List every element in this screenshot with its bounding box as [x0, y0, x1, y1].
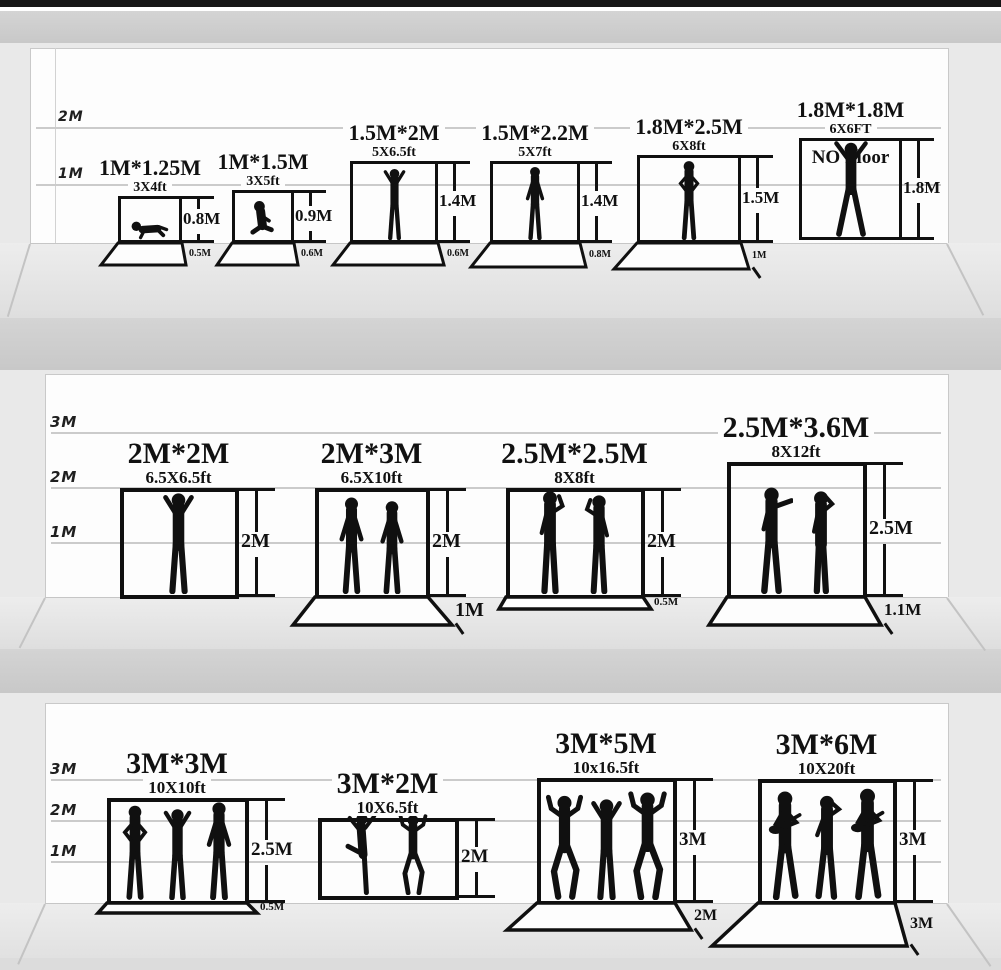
dimension-line-lower: [475, 872, 478, 895]
dimension-line-upper: [197, 199, 200, 209]
backdrop-caption: 2.5M*2.5M8X8ft: [451, 439, 698, 487]
backdrop-title: 2M*3M: [316, 439, 428, 469]
axis-label: 2M: [58, 109, 84, 125]
shelf-row-small-backdrops: 2M1M1M*1.25M3X4ft0.8M0.5M1M*1.5M3X5ft0.9…: [0, 43, 1001, 318]
height-dimension: 1.8M: [900, 138, 964, 240]
backdrop-caption: 3M*2M10X6.5ft: [263, 769, 512, 817]
silhouette-guitar-icon: [763, 790, 807, 900]
backdrop-subtitle-feet: 8X12ft: [766, 443, 825, 460]
subtitle-row: 6X8ft: [582, 138, 796, 154]
floor-depth-label: 1.1M: [884, 600, 921, 620]
title-row: 3M*5M: [482, 729, 730, 759]
backdrop-title: 3M*3M: [121, 749, 233, 779]
height-dimension: 2.5M: [863, 462, 927, 597]
backdrop-title: 1.8M*1.8M: [792, 99, 910, 121]
dimension-line-upper: [693, 781, 696, 830]
silhouette-victory-icon: [158, 492, 199, 594]
shelf-front-edge: [0, 958, 1001, 970]
title-row: 1.8M*1.8M: [744, 99, 957, 121]
height-dimension: 2M: [641, 488, 705, 597]
silhouette-phone-icon: [800, 490, 842, 594]
silhouette-victory-icon: [159, 808, 196, 900]
height-dimension: 3M: [893, 779, 957, 903]
floor-mat: [289, 595, 456, 629]
height-dimension-label: 1.8M: [903, 178, 940, 198]
silhouette-talkR-icon: [529, 490, 571, 594]
shelf-divider-band: [0, 11, 1001, 43]
shelf-row-medium-backdrops: 3M2M1M2M*2M6.5X6.5ft2M2M*3M6.5X10ft2M1M2…: [0, 370, 1001, 649]
floor-mat: [495, 595, 655, 613]
dimension-line-lower: [265, 865, 268, 901]
height-dimension-label: 1.4M: [581, 191, 618, 211]
subtitle-row: 10X6.5ft: [263, 799, 512, 817]
backdrop-subtitle-feet: 6.5X6.5ft: [140, 469, 216, 486]
title-row: 3M*6M: [703, 730, 950, 760]
floor-mat: [97, 241, 190, 269]
dimension-line-lower: [197, 234, 200, 241]
dimension-line-upper: [661, 491, 664, 532]
silhouette-stand-icon: [332, 496, 371, 594]
subtitle-row: 6.5X10ft: [260, 469, 483, 487]
dimension-line-upper: [446, 491, 449, 532]
dimension-line-upper: [255, 491, 258, 532]
silhouette-hips-icon: [673, 160, 705, 240]
silhouette-kick-icon: [343, 811, 382, 895]
dimension-line-lower: [309, 231, 312, 241]
dimension-bottom-tick: [455, 895, 495, 898]
backdrop-title: 3M*6M: [771, 730, 883, 760]
backdrop-frame: [318, 818, 459, 900]
backdrop-subtitle-feet: 6X6FT: [825, 123, 877, 137]
dimension-bottom-tick: [436, 240, 470, 243]
silhouette-victory-icon: [586, 798, 627, 900]
floor-depth-label: 2M: [694, 907, 717, 925]
height-dimension: 1.4M: [436, 161, 500, 243]
floor-mat: [708, 901, 911, 950]
backdrop-size-chart: 2M1M1M*1.25M3X4ft0.8M0.5M1M*1.5M3X5ft0.9…: [0, 0, 1001, 970]
height-dimension: 1.5M: [739, 155, 803, 243]
silhouette-point-icon: [750, 486, 793, 594]
dimension-bottom-tick: [578, 240, 612, 243]
dimension-line-lower: [883, 544, 886, 595]
floor-mat: [503, 901, 695, 934]
dimension-line-upper: [913, 782, 916, 830]
height-dimension-label: 2M: [461, 846, 488, 868]
floor-depth-label: 1M: [455, 599, 484, 622]
dimension-line-lower: [917, 203, 920, 237]
subtitle-row: 10x16.5ft: [482, 759, 730, 777]
dimension-line-upper: [883, 465, 886, 519]
subtitle-row: 6X6FT: [744, 121, 957, 137]
floor-mat: [329, 241, 448, 269]
silhouette-stand-icon: [373, 500, 411, 594]
silhouette-stand-icon: [199, 801, 239, 900]
backdrop-subtitle-feet: 10X6.5ft: [352, 799, 424, 816]
height-dimension-label: 0.9M: [295, 206, 332, 226]
axis-label: 3M: [50, 413, 77, 431]
dimension-bottom-tick: [863, 594, 903, 597]
height-dimension-label: 2M: [432, 530, 461, 553]
dimension-line-upper: [475, 821, 478, 847]
dimension-line-upper: [756, 158, 759, 188]
silhouette-toddler-icon: [245, 198, 281, 240]
backdrop-subtitle-feet: 3X5ft: [241, 175, 284, 189]
backdrop-caption: 2M*2M6.5X6.5ft: [65, 439, 292, 487]
height-dimension: 0.9M: [292, 190, 356, 243]
silhouette-danceup-icon: [540, 794, 589, 900]
dimension-line-lower: [693, 855, 696, 901]
axis-label: 1M: [50, 523, 77, 541]
no-floor-note: NO Floor: [803, 147, 898, 169]
title-row: 2M*3M: [260, 439, 483, 469]
backdrop-caption: 2M*3M6.5X10ft: [260, 439, 483, 487]
dimension-bottom-tick: [180, 240, 214, 243]
backdrop-subtitle-feet: 5X6.5ft: [367, 146, 421, 160]
dimension-line-lower: [453, 216, 456, 240]
backdrop-title: 3M*5M: [550, 729, 662, 759]
height-dimension-label: 2.5M: [869, 517, 913, 540]
dimension-line-upper: [453, 164, 456, 191]
floor-mat: [467, 241, 590, 271]
height-dimension: 2M: [235, 488, 299, 597]
shelf-divider-band: [0, 318, 1001, 370]
dimension-line-upper: [917, 141, 920, 178]
dimension-line-upper: [595, 164, 598, 191]
height-dimension-label: 0.8M: [183, 209, 220, 229]
subtitle-row: 8X12ft: [672, 443, 920, 461]
backdrop-subtitle-feet: 6.5X10ft: [336, 469, 408, 486]
backdrop-subtitle-feet: 6X8ft: [667, 140, 710, 154]
height-dimension-label: 3M: [679, 829, 706, 851]
height-dimension-label: 1.4M: [439, 191, 476, 211]
floor-depth-label: 0.5M: [654, 596, 678, 608]
silhouette-stand-icon: [520, 166, 550, 240]
backdrop-title: 1.5M*2.2M: [476, 122, 594, 144]
backdrop-subtitle-feet: 8X8ft: [549, 469, 600, 486]
height-dimension-label: 2.5M: [251, 839, 293, 861]
dimension-line-lower: [255, 557, 258, 595]
dimension-line-lower: [661, 557, 664, 595]
axis-label: 1M: [50, 842, 77, 860]
top-black-strip: [0, 0, 1001, 7]
backdrop-title: 3M*2M: [332, 769, 444, 799]
backdrop-subtitle-feet: 10x16.5ft: [568, 759, 645, 776]
backdrop-caption: 3M*6M10X20ft: [703, 730, 950, 778]
shelf-row-large-backdrops: 3M2M1M3M*3M10X10ft2.5M0.5M3M*2M10X6.5ft2…: [0, 693, 1001, 970]
backdrop-subtitle-feet: 3X4ft: [128, 181, 171, 195]
floor-depth-label: 1M: [752, 250, 766, 261]
subtitle-row: 8X8ft: [451, 469, 698, 487]
height-dimension: 0.8M: [180, 196, 244, 243]
floor-mat: [213, 241, 302, 269]
wall-fold-line: [55, 48, 56, 243]
dimension-line-lower: [595, 216, 598, 240]
dimension-bottom-tick: [235, 594, 275, 597]
backdrop-title: 2.5M*3.6M: [718, 413, 875, 443]
floor-mat: [94, 901, 261, 917]
backdrop-frame: [727, 462, 867, 599]
dimension-bottom-tick: [900, 237, 934, 240]
floor-mat: [610, 241, 753, 273]
title-row: 2M*2M: [65, 439, 292, 469]
height-dimension-label: 2M: [241, 530, 270, 553]
subtitle-row: 10X20ft: [703, 760, 950, 778]
subtitle-row: 3X5ft: [177, 173, 349, 189]
backdrop-title: 2.5M*2.5M: [496, 439, 653, 469]
floor-depth-label: 0.6M: [447, 248, 469, 259]
dimension-bottom-tick: [739, 240, 773, 243]
backdrop-caption: 3M*5M10x16.5ft: [482, 729, 730, 777]
height-dimension-label: 2M: [647, 530, 676, 553]
subtitle-row: 6.5X6.5ft: [65, 469, 292, 487]
shelf-divider-band: [0, 649, 1001, 693]
backdrop-caption: 1.8M*1.8M6X6FT: [744, 99, 957, 137]
backdrop-subtitle-feet: 10X10ft: [143, 779, 211, 796]
height-dimension-label: 3M: [899, 829, 926, 851]
floor-depth-label: 0.5M: [189, 248, 211, 259]
backdrop-frame: [506, 488, 645, 599]
title-row: 2.5M*2.5M: [451, 439, 698, 469]
silhouette-baby-icon: [129, 214, 172, 240]
dimension-line-upper: [309, 193, 312, 206]
silhouette-victory-icon: [380, 168, 409, 240]
dimension-line-lower: [446, 557, 449, 595]
silhouette-hips-icon: [116, 804, 154, 900]
dimension-bottom-tick: [426, 594, 466, 597]
silhouette-danceup-icon: [622, 791, 673, 900]
backdrop-title: 1.8M*2.5M: [630, 116, 748, 138]
backdrop-title: 1.5M*2M: [343, 122, 444, 144]
height-dimension: 2M: [455, 818, 519, 898]
backdrop-caption: 2.5M*3.6M8X12ft: [672, 413, 920, 461]
floor-depth-label: 0.6M: [301, 248, 323, 259]
backdrop-subtitle-feet: 10X20ft: [793, 760, 861, 777]
dimension-bottom-tick: [292, 240, 326, 243]
silhouette-guitar-icon: [845, 787, 890, 900]
silhouette-danceup-icon: [394, 814, 432, 895]
height-dimension-label: 1.5M: [742, 188, 779, 208]
dimension-line-lower: [756, 213, 759, 240]
height-dimension: 2M: [426, 488, 490, 597]
backdrop-title: 2M*2M: [123, 439, 235, 469]
dimension-line-lower: [913, 855, 916, 900]
axis-label: 2M: [50, 801, 77, 819]
silhouette-sing-icon: [806, 794, 848, 900]
floor-depth-label: 3M: [910, 915, 933, 933]
silhouette-talkL-icon: [579, 494, 619, 594]
dimension-bottom-tick: [893, 900, 933, 903]
height-dimension: 3M: [673, 778, 737, 903]
title-row: 2.5M*3.6M: [672, 413, 920, 443]
backdrop-subtitle-feet: 5X7ft: [513, 146, 556, 160]
floor-mat: [705, 595, 885, 629]
title-row: 3M*2M: [263, 769, 512, 799]
floor-depth-label: 0.8M: [589, 249, 611, 260]
height-dimension: 1.4M: [578, 161, 642, 243]
dimension-bottom-tick: [673, 900, 713, 903]
floor-depth-label: 0.5M: [260, 901, 284, 913]
